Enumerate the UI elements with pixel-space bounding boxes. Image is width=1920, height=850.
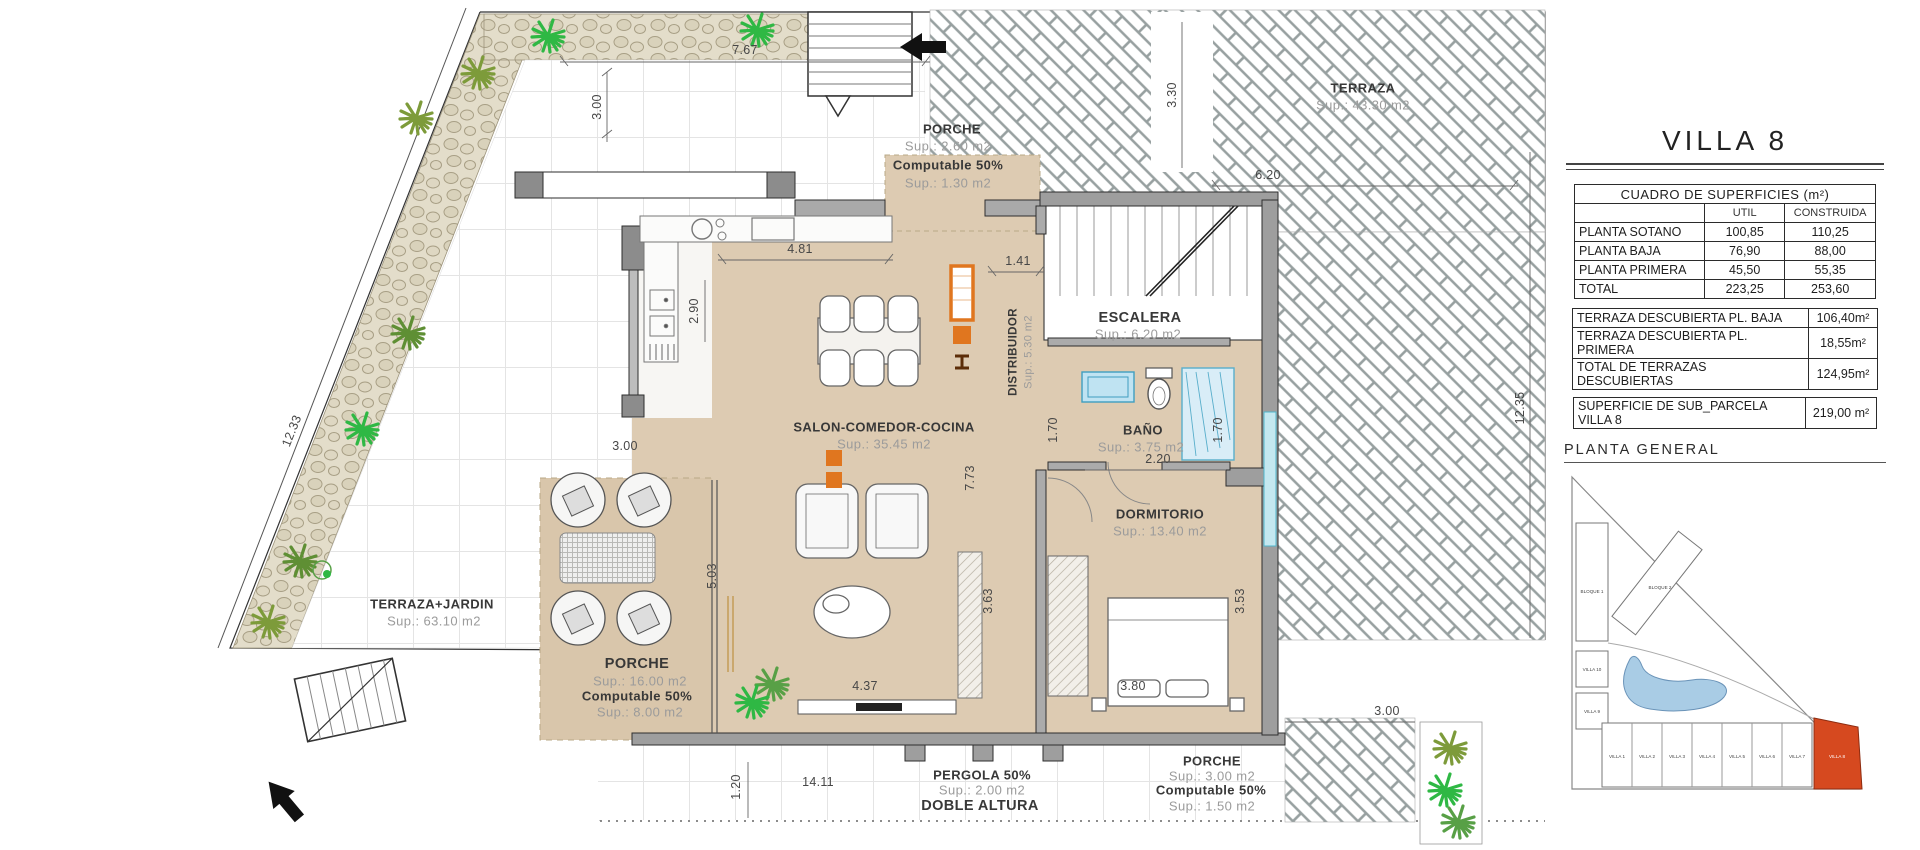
terraces-table: TERRAZA DESCUBIERTA PL. BAJA 106,40m² TE… <box>1572 308 1878 390</box>
table-row: UTIL CONSTRUIDA <box>1575 204 1876 223</box>
room-sup-pergola: Sup.: 2.00 m2 <box>939 784 1025 797</box>
site-label-villa8: VILLA 8 <box>1829 754 1846 759</box>
dim-label: 14.11 <box>802 776 834 789</box>
cell-construida: 88,00 <box>1785 242 1876 261</box>
room-label-porche-top: PORCHE <box>923 123 981 136</box>
dim-label: 2.20 <box>1145 453 1171 466</box>
room-sup-porche-bottom: Sup.: 3.00 m2 <box>1169 770 1255 783</box>
dim-label: 3.63 <box>982 588 995 614</box>
room-label-porche-bottom: PORCHE <box>1183 755 1241 768</box>
room-sup-terraza: Sup.: 43.30 m2 <box>1316 99 1410 112</box>
cell-label: PLANTA PRIMERA <box>1575 261 1705 280</box>
cell-label: PLANTA SOTANO <box>1575 223 1705 242</box>
cell-construida: 55,35 <box>1785 261 1876 280</box>
entry-arrow-icon <box>258 773 310 828</box>
cell-label: PLANTA BAJA <box>1575 242 1705 261</box>
room-computable-porche-top: Computable 50% <box>893 159 1003 172</box>
col-util: UTIL <box>1705 204 1785 223</box>
cell-label: TERRAZA DESCUBIERTA PL. BAJA <box>1573 309 1809 328</box>
cell-blank <box>1575 204 1705 223</box>
cell-value: 106,40m² <box>1809 309 1878 328</box>
dining-table <box>818 296 920 386</box>
site-label-villa: VILLA 4 <box>1699 754 1716 759</box>
cell-util: 223,25 <box>1705 280 1785 299</box>
site-label-bloque1: BLOQUE 1 <box>1581 589 1604 594</box>
cell-util: 100,85 <box>1705 223 1785 242</box>
floorplan-sheet: PORCHE Sup.: 2.60 m2 Computable 50% Sup.… <box>0 0 1920 850</box>
cell-value: 18,55m² <box>1809 328 1878 359</box>
room-computable-porche-left: Computable 50% <box>582 690 692 703</box>
parcel-table: SUPERFICIE DE SUB_PARCELA VILLA 8 219,00… <box>1573 397 1877 429</box>
room-label-terraza: TERRAZA <box>1331 82 1396 95</box>
room-computable-sup-porche-left: Sup.: 8.00 m2 <box>597 706 683 719</box>
room-computable-sup-porche-bottom: Sup.: 1.50 m2 <box>1169 800 1255 813</box>
room-sup-bano: Sup.: 3.75 m2 <box>1098 441 1184 454</box>
table-row: PLANTA SOTANO 100,85 110,25 <box>1575 223 1876 242</box>
dim-label: 3.53 <box>1234 588 1247 614</box>
table-row: PLANTA BAJA 76,90 88,00 <box>1575 242 1876 261</box>
site-label-villa: VILLA 2 <box>1639 754 1656 759</box>
dim-label: 4.37 <box>852 680 878 693</box>
cell-util: 45,50 <box>1705 261 1785 280</box>
cell-label: SUPERFICIE DE SUB_PARCELA VILLA 8 <box>1574 398 1806 429</box>
room-label-salon: SALON-COMEDOR-COCINA <box>793 421 974 434</box>
info-panel: VILLA 8 CUADRO DE SUPERFICIES (m²) UTIL … <box>1560 95 1890 811</box>
site-plan-title: PLANTA GENERAL <box>1564 442 1886 463</box>
table-row: PLANTA PRIMERA 45,50 55,35 <box>1575 261 1876 280</box>
cell-label: TERRAZA DESCUBIERTA PL. PRIMERA <box>1573 328 1809 359</box>
cell-label: TOTAL <box>1575 280 1705 299</box>
cell-value: 219,00 m² <box>1806 398 1877 429</box>
table-row: SUPERFICIE DE SUB_PARCELA VILLA 8 219,00… <box>1574 398 1877 429</box>
dim-label: 3.30 <box>1166 82 1179 108</box>
site-plan-map: BLOQUE 1 BLOQUE 2 VILLA 10 VILLA 9 VILLA… <box>1562 471 1872 811</box>
dim-label: 1.70 <box>1212 417 1225 443</box>
site-label-villa9: VILLA 9 <box>1584 709 1601 714</box>
dim-label: 1.20 <box>730 774 743 800</box>
cell-util: 76,90 <box>1705 242 1785 261</box>
room-label-dormitorio: DORMITORIO <box>1116 508 1204 521</box>
dim-label: 7.73 <box>964 465 977 491</box>
dim-label: 12.35 <box>1514 392 1527 425</box>
room-label-pergola: PERGOLA 50% <box>933 769 1031 782</box>
room-label-porche-left: PORCHE <box>605 657 669 672</box>
room-label-terraza-jardin: TERRAZA+JARDIN <box>370 598 494 611</box>
dim-label: 1.41 <box>1005 255 1031 268</box>
site-label-villa10: VILLA 10 <box>1583 667 1602 672</box>
table-row: TERRAZA DESCUBIERTA PL. BAJA 106,40m² <box>1573 309 1878 328</box>
table-row: TERRAZA DESCUBIERTA PL. PRIMERA 18,55m² <box>1573 328 1878 359</box>
site-label-villa: VILLA 1 <box>1609 754 1626 759</box>
cell-construida: 253,60 <box>1785 280 1876 299</box>
dim-label: 5.03 <box>706 563 719 589</box>
room-sup-escalera: Sup.: 6.20 m2 <box>1095 328 1181 341</box>
surfaces-table: CUADRO DE SUPERFICIES (m²) UTIL CONSTRUI… <box>1574 184 1876 299</box>
room-sup-porche-left: Sup.: 16.00 m2 <box>593 675 687 688</box>
cell-construida: 110,25 <box>1785 223 1876 242</box>
room-label-doble-altura: DOBLE ALTURA <box>921 799 1039 814</box>
dim-label: 3.00 <box>591 94 604 120</box>
room-label-distribuidor: DISTRIBUIDOR <box>1008 308 1020 396</box>
table-row: TOTAL 223,25 253,60 <box>1575 280 1876 299</box>
lower-staircase <box>294 658 405 741</box>
room-sup-dormitorio: Sup.: 13.40 m2 <box>1113 525 1207 538</box>
dim-label: 3.80 <box>1120 680 1146 693</box>
room-computable-sup-porche-top: Sup.: 1.30 m2 <box>905 177 991 190</box>
planter-strip <box>1420 722 1482 844</box>
site-label-villa: VILLA 5 <box>1729 754 1746 759</box>
room-label-escalera: ESCALERA <box>1099 311 1182 326</box>
dim-label: 3.00 <box>1374 705 1400 718</box>
room-sup-salon: Sup.: 35.45 m2 <box>837 438 931 451</box>
site-label-bloque2: BLOQUE 2 <box>1649 585 1672 590</box>
cell-label: TOTAL DE TERRAZAS DESCUBIERTAS <box>1573 359 1809 390</box>
room-sup-terraza-jardin: Sup.: 63.10 m2 <box>387 615 481 628</box>
dim-label: 6.20 <box>1255 169 1281 182</box>
site-label-villa: VILLA 3 <box>1669 754 1686 759</box>
site-label-villa: VILLA 7 <box>1789 754 1806 759</box>
site-label-villa: VILLA 6 <box>1759 754 1776 759</box>
cell-value: 124,95m² <box>1809 359 1878 390</box>
dim-label: 4.81 <box>787 243 813 256</box>
dim-label: 1.70 <box>1047 417 1060 443</box>
room-sup-porche-top: Sup.: 2.60 m2 <box>905 140 991 153</box>
villa-title: VILLA 8 <box>1560 125 1890 157</box>
table-row: TOTAL DE TERRAZAS DESCUBIERTAS 124,95m² <box>1573 359 1878 390</box>
dim-label: 7.67 <box>732 44 758 57</box>
dim-label: 3.00 <box>612 440 638 453</box>
room-sup-distribuidor: Sup.: 5.30 m2 <box>1024 315 1035 389</box>
room-computable-porche-bottom: Computable 50% <box>1156 784 1266 797</box>
col-construida: CONSTRUIDA <box>1785 204 1876 223</box>
dim-label: 2.90 <box>688 298 701 324</box>
title-rule <box>1566 163 1884 170</box>
surfaces-header: CUADRO DE SUPERFICIES (m²) <box>1575 185 1876 204</box>
room-label-bano: BAÑO <box>1123 424 1163 437</box>
table-row: CUADRO DE SUPERFICIES (m²) <box>1575 185 1876 204</box>
